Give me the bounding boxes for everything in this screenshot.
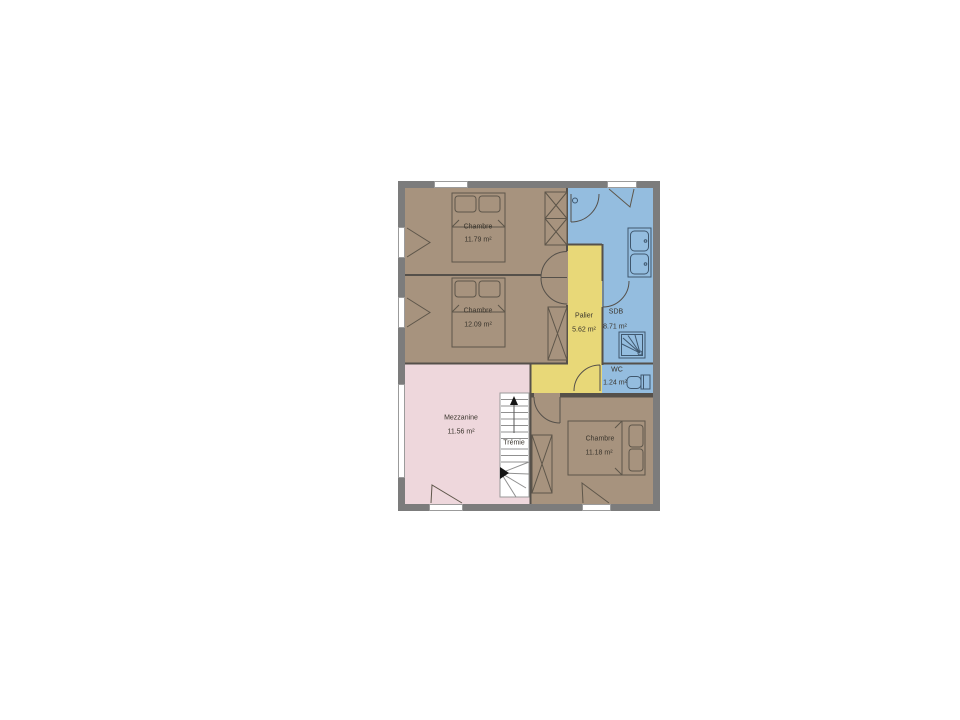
- room-label-tremie: Trémie: [503, 440, 525, 447]
- room-label-wc: WC: [611, 367, 623, 374]
- room-area-palier: 5.62 m²: [572, 327, 596, 334]
- room-label-mezzanine: Mezzanine: [444, 415, 478, 422]
- door-arc: [541, 278, 567, 304]
- door-arc: [534, 397, 560, 423]
- room-area-wc: 1.24 m²: [603, 380, 627, 387]
- window-flap: [407, 298, 430, 327]
- room-label-palier: Palier: [575, 313, 593, 320]
- room-area-chambre-2: 12.09 m²: [464, 322, 492, 329]
- window-flap: [431, 485, 462, 503]
- window-flap: [609, 189, 634, 207]
- room-area-chambre-1: 11.79 m²: [464, 237, 491, 244]
- room-label-chambre-3: Chambre: [586, 436, 615, 443]
- shower-symbol: [619, 332, 645, 358]
- wardrobe-symbol: [545, 192, 567, 245]
- wardrobe-symbol: [548, 307, 567, 360]
- room-label-chambre-1: Chambre: [464, 224, 493, 231]
- double-washbasin-symbol: [628, 228, 651, 277]
- room-area-mezzanine: 11.56 m²: [447, 429, 474, 436]
- bed-symbol-chambre3: [568, 421, 645, 475]
- window-flap: [407, 228, 430, 257]
- room-area-sdb: 8.71 m²: [603, 324, 627, 331]
- door-arc: [603, 281, 629, 307]
- chambre3-top-wall: [530, 393, 653, 398]
- toilet-symbol: [627, 375, 650, 389]
- room-label-chambre-2: Chambre: [464, 308, 493, 315]
- floorplan-canvas: Chambre 11.79 m² Chambre 12.09 m² Palier…: [0, 0, 960, 720]
- room-area-chambre-3: 11.18 m²: [585, 450, 612, 457]
- floor-plan: Chambre 11.79 m² Chambre 12.09 m² Palier…: [398, 181, 660, 511]
- light-symbol: [573, 198, 578, 203]
- door-arc: [541, 252, 567, 278]
- plan-linework: [398, 181, 660, 511]
- wardrobe-symbol: [532, 435, 552, 493]
- window-flap: [582, 483, 609, 503]
- door-arc: [574, 365, 600, 391]
- room-label-sdb: SDB: [609, 309, 623, 316]
